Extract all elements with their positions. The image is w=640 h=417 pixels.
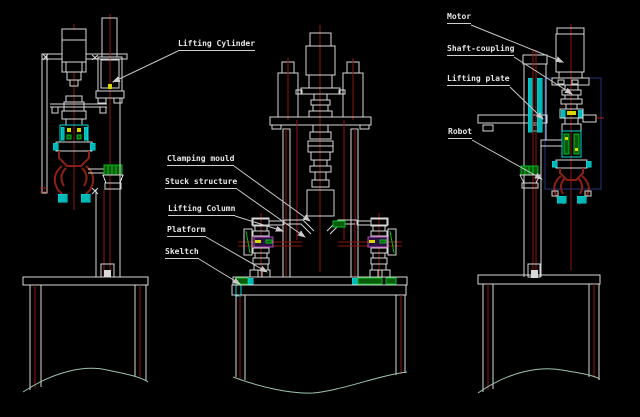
leader-clamping-mould bbox=[234, 166, 310, 221]
leader-lifting-cylinder bbox=[113, 51, 178, 82]
label-skeltch: Skeltch bbox=[165, 248, 199, 259]
label-lifting-column: Lifting Column bbox=[168, 205, 235, 216]
leader-shaft-coupling bbox=[514, 57, 572, 94]
center-view-assembly bbox=[232, 25, 407, 393]
leader-robot bbox=[472, 140, 542, 179]
cad-drawing-canvas[interactable]: Lifting Cylinder Clamping mould Stuck st… bbox=[0, 0, 640, 417]
label-stuck-structure: Stuck structure bbox=[165, 178, 237, 189]
label-clamping-mould: Clamping mould bbox=[167, 155, 234, 166]
label-motor: Motor bbox=[447, 13, 471, 24]
clamp-mechanism-right bbox=[338, 213, 402, 277]
label-shaft-coupling: Shaft-coupling bbox=[447, 45, 514, 56]
label-robot: Robot bbox=[448, 128, 472, 139]
label-platform: Platform bbox=[167, 226, 206, 237]
leader-stuck-structure bbox=[237, 189, 305, 237]
leader-skeltch bbox=[199, 259, 240, 284]
clamp-mechanism-left bbox=[238, 213, 302, 277]
label-lifting-plate: Lifting plate bbox=[447, 75, 510, 86]
left-view-assembly bbox=[23, 14, 148, 392]
cad-drawing bbox=[0, 0, 640, 417]
label-lifting-cylinder: Lifting Cylinder bbox=[178, 40, 255, 51]
